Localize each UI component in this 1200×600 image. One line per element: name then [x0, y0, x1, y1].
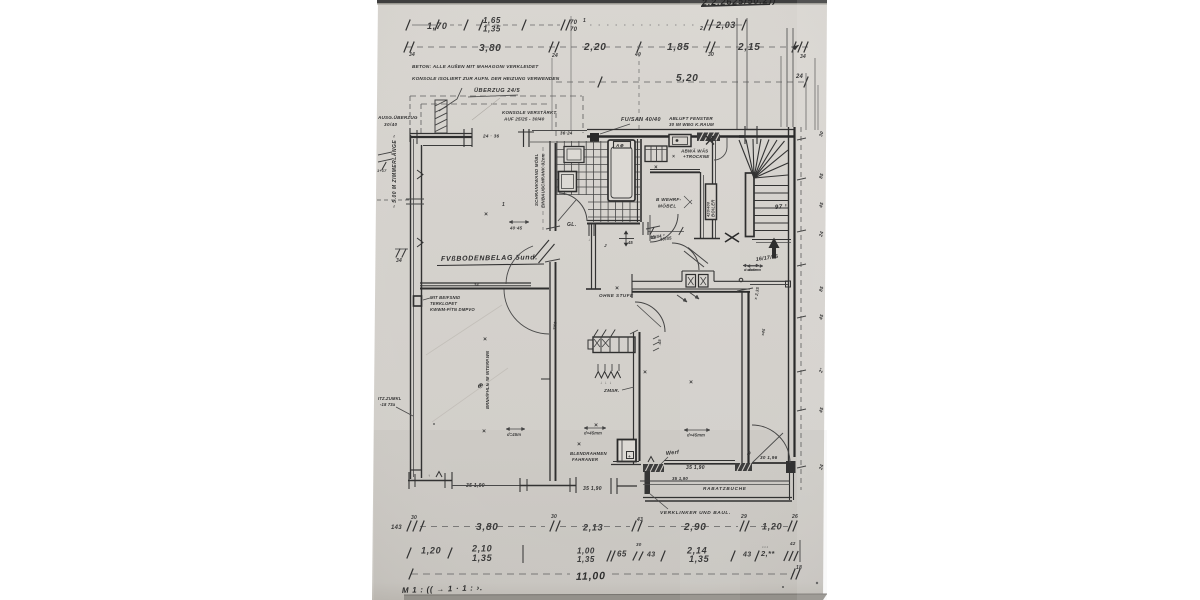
svg-text:2,15: 2,15: [737, 42, 761, 53]
svg-text:65: 65: [617, 550, 627, 559]
svg-text:d=45m: d=45m: [507, 432, 521, 437]
svg-text:2,20: 2,20: [583, 42, 607, 53]
svg-text:×: ×: [689, 379, 693, 386]
svg-text:BETON: ALLE AUßEN MIT MAHAGONI: BETON: ALLE AUßEN MIT MAHAGONI VERKLEIDE…: [412, 64, 539, 69]
svg-text:42: 42: [789, 541, 796, 546]
svg-text:+: +: [628, 454, 631, 459]
svg-text:35 1,90: 35 1,90: [583, 486, 602, 492]
svg-text:1,70: 1,70: [427, 21, 448, 31]
svg-text:×: ×: [483, 336, 487, 343]
svg-text:AUF 25/25 - 30/40: AUF 25/25 - 30/40: [503, 117, 545, 122]
svg-text:43: 43: [742, 552, 751, 559]
svg-text:34: 34: [800, 54, 806, 60]
svg-text:30: 30: [636, 542, 642, 547]
svg-text:5,20: 5,20: [676, 73, 699, 84]
svg-text:34: 34: [396, 258, 402, 264]
svg-text:d=4mm: d=4mm: [748, 268, 762, 272]
svg-text:MÖBEL: MÖBEL: [658, 203, 677, 209]
svg-text:SCHRANKWAND MÖBL: SCHRANKWAND MÖBL: [534, 153, 539, 206]
svg-text:×: ×: [484, 211, 488, 218]
svg-text:2,90: 2,90: [683, 522, 707, 533]
svg-text:ABWÄ WÄS: ABWÄ WÄS: [680, 148, 708, 154]
svg-text:AUSG.ÜBERZUG: AUSG.ÜBERZUG: [377, 114, 418, 120]
svg-text:BOILER: BOILER: [711, 199, 716, 217]
svg-text:ITZ.ZUMKL: ITZ.ZUMKL: [378, 396, 402, 401]
svg-text:97 ¹: 97 ¹: [775, 203, 788, 211]
svg-text:40: 40: [634, 52, 641, 58]
svg-text:30 IM WBG K.RAUM: 30 IM WBG K.RAUM: [669, 122, 714, 127]
svg-text:18: 18: [796, 565, 802, 571]
svg-text:↓: ↓: [588, 237, 590, 242]
svg-text:-18 73a: -18 73a: [380, 402, 396, 407]
svg-text:KONSOLE VERSTÄRKT: KONSOLE VERSTÄRKT: [502, 109, 557, 115]
svg-text:2: 2: [699, 26, 703, 32]
svg-text:36·24: 36·24: [560, 131, 573, 136]
svg-text:×: ×: [615, 285, 619, 292]
svg-text:D: D: [747, 451, 751, 457]
svg-text:↓65: ↓65: [657, 339, 662, 346]
svg-text:15: 15: [651, 235, 656, 240]
svg-text:1,20: 1,20: [762, 522, 782, 532]
svg-text:~ 5.00 M ZIMMERLÄNGE ~: ~ 5.00 M ZIMMERLÄNGE ~: [391, 134, 398, 208]
svg-text:↓ ↓ ↓: ↓ ↓ ↓: [600, 380, 612, 385]
svg-text:MIT BEIFSNID: MIT BEIFSNID: [430, 295, 460, 300]
svg-text:1: 1: [502, 202, 505, 208]
svg-text:A⊕: A⊕: [615, 143, 624, 148]
svg-text:30: 30: [551, 514, 557, 520]
svg-text:ABLUFT FENSTER: ABLUFT FENSTER: [668, 116, 713, 121]
svg-text:1+17: 1+17: [377, 168, 387, 173]
svg-text:KWWM-P/TN DMPVO: KWWM-P/TN DMPVO: [430, 307, 475, 312]
svg-text:2,13: 2,13: [582, 523, 603, 533]
svg-text:26: 26: [791, 514, 798, 520]
svg-text:40·45: 40·45: [509, 226, 523, 231]
svg-text:30 1,96: 30 1,96: [760, 455, 778, 460]
svg-text:···: ···: [762, 545, 769, 551]
svg-text:30: 30: [708, 52, 714, 58]
svg-text:3,80: 3,80: [479, 43, 502, 54]
svg-text:VERKLINKER UND BAUL.: VERKLINKER UND BAUL.: [660, 510, 731, 516]
svg-text:d=45mm: d=45mm: [584, 431, 602, 436]
svg-text:30/40: 30/40: [384, 122, 398, 127]
svg-text:24 · 36: 24 · 36: [482, 134, 500, 139]
svg-text:GL.: GL.: [567, 222, 577, 228]
svg-text:1,35: 1,35: [577, 555, 595, 564]
svg-text:×: ×: [577, 441, 581, 448]
svg-text:BRNH/FHLM IM INTERP.WN: BRNH/FHLM IM INTERP.WN: [485, 350, 490, 409]
svg-text:43: 43: [636, 517, 643, 523]
svg-text:43: 43: [646, 552, 655, 559]
svg-text:11,00: 11,00: [576, 570, 606, 583]
svg-text:d=45mm: d=45mm: [687, 433, 705, 438]
svg-text:1,35: 1,35: [689, 554, 710, 564]
svg-text:FAHRANER: FAHRANER: [572, 457, 599, 462]
svg-text:35 1,90: 35 1,90: [686, 465, 705, 471]
svg-text:FU/SAN 40/40: FU/SAN 40/40: [621, 117, 661, 123]
svg-text:143: 143: [391, 525, 402, 531]
svg-text:×: ×: [654, 165, 658, 171]
svg-text:29: 29: [740, 514, 747, 520]
svg-text:EINBAUSCHRANK 32cm: EINBAUSCHRANK 32cm: [541, 153, 546, 208]
svg-text:1,35: 1,35: [472, 553, 493, 563]
svg-text:24: 24: [795, 74, 804, 80]
svg-text:34: 34: [474, 282, 479, 287]
svg-text:1: 1: [583, 18, 586, 24]
svg-text:B WEHRF-: B WEHRF-: [656, 197, 682, 202]
svg-text:34: 34: [409, 52, 415, 58]
svg-text:1,85: 1,85: [667, 42, 690, 53]
svg-text:×: ×: [672, 154, 675, 160]
svg-text:ÜBERZUG 24/5: ÜBERZUG 24/5: [474, 87, 520, 94]
svg-text:ZMäR.: ZMäR.: [603, 388, 620, 393]
svg-text:TERKLOPET: TERKLOPET: [430, 301, 457, 306]
svg-text:↑: ↑: [428, 473, 430, 478]
svg-text:45: 45: [627, 240, 633, 245]
svg-text:30: 30: [411, 515, 417, 521]
svg-text:×: ×: [482, 428, 486, 435]
svg-text:3,80: 3,80: [476, 522, 499, 533]
svg-text:×: ×: [643, 369, 647, 376]
svg-text:420/400: 420/400: [707, 201, 711, 218]
svg-text:BLENDRAHMEN: BLENDRAHMEN: [570, 451, 608, 456]
svg-text:1,20: 1,20: [421, 546, 441, 556]
svg-text:RABATZBUCHE: RABATZBUCHE: [703, 486, 747, 491]
svg-text:2,10: 2,10: [471, 544, 492, 554]
svg-text:KONSOLE ISOLIERT ZUR AUFN. DER: KONSOLE ISOLIERT ZUR AUFN. DER HEIZUNG V…: [412, 76, 560, 81]
svg-text:2,03: 2,03: [715, 20, 736, 30]
svg-text:+TROCKNE: +TROCKNE: [683, 154, 710, 159]
svg-text:OHNE STUFE: OHNE STUFE: [599, 293, 634, 298]
svg-text:35 1,90: 35 1,90: [672, 476, 688, 481]
svg-text:35 1,90: 35 1,90: [466, 483, 485, 489]
svg-text:1,35: 1,35: [483, 25, 501, 34]
